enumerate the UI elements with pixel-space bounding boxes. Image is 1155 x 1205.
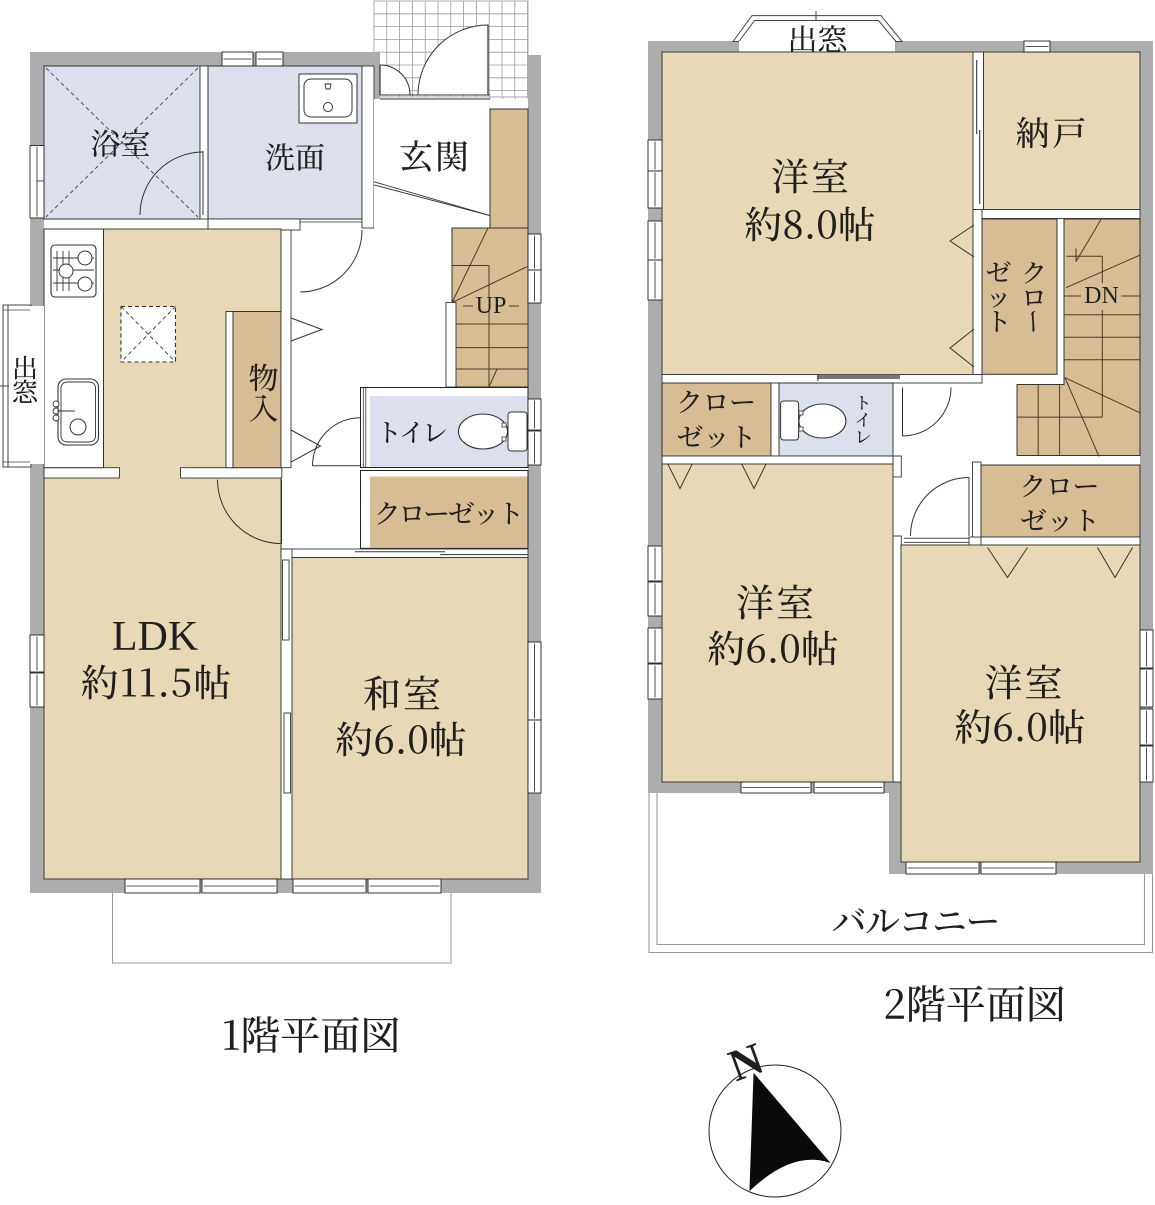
svg-text:LDK: LDK [112,614,198,660]
svg-text:N: N [722,1033,770,1091]
svg-text:UP: UP [476,293,507,319]
svg-text:DN: DN [1084,283,1119,309]
